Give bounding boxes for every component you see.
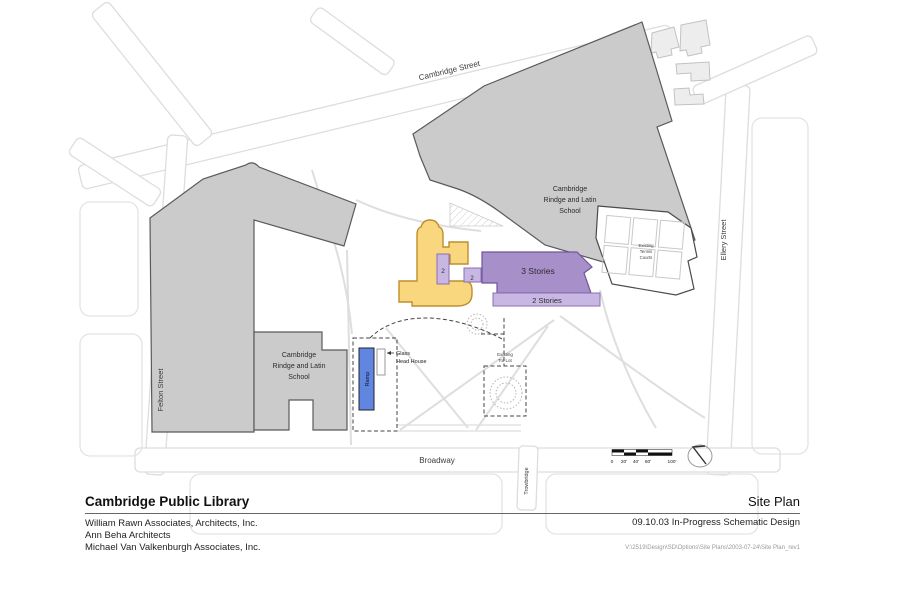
felton-street-label: Felton Street — [156, 368, 165, 412]
road-topright-diagonal — [692, 34, 819, 105]
school-label-line: School — [559, 208, 581, 215]
ellery-street-road — [706, 85, 750, 476]
leader-arrowhead — [387, 351, 391, 355]
library-existing-building — [399, 220, 472, 306]
totlot-label-line: Tot Lot — [498, 358, 512, 363]
tennis-label-line: Tennis — [640, 249, 652, 254]
glass-head-house-structure — [377, 349, 385, 375]
road-topleft-diagonal — [90, 1, 213, 148]
scale-tick: 20' — [621, 459, 627, 465]
tree — [467, 314, 487, 334]
tennis-label-line: Courts — [640, 255, 653, 260]
road-topmid-diagonal — [309, 6, 396, 76]
school-label-line: Cambridge — [553, 186, 587, 193]
neighbor-building — [680, 20, 710, 56]
school-label-line: Rindge and Latin — [273, 363, 326, 370]
addition-3story-label: 3 Stories — [521, 266, 555, 276]
totlot-label-line: Existing — [497, 352, 513, 357]
scale-tick: 0 — [611, 459, 614, 465]
ellery-street-label: Ellery Street — [719, 219, 728, 261]
glass-label-line: Glass — [396, 351, 410, 357]
school-label-line: School — [288, 374, 310, 381]
tot-lot-label: Existing Tot Lot — [497, 352, 513, 363]
neighbor-building — [676, 62, 710, 81]
link-floors-label: 2 — [441, 268, 445, 275]
broadway-road — [135, 448, 780, 472]
scale-tick: 100' — [668, 459, 677, 465]
school-building-left-wing — [254, 332, 347, 430]
zone-arc — [370, 318, 504, 340]
broadway-label: Broadway — [419, 456, 455, 465]
school-label-line: Cambridge — [282, 352, 316, 359]
scale-tick: 40' — [633, 459, 639, 465]
school-label-line: Rindge and Latin — [544, 197, 597, 204]
tennis-label-line: Existing — [638, 243, 654, 248]
site-plan-sheet: 0 20' 40' 60' 100' Cambridge Street Felt… — [0, 0, 900, 600]
site-plan-drawing: 0 20' 40' 60' 100' Cambridge Street Felt… — [0, 0, 900, 600]
scale-tick: 60' — [645, 459, 651, 465]
tree — [490, 377, 522, 409]
ramp-label: Ramp — [365, 372, 371, 387]
glass-label-line: Head House — [396, 359, 427, 365]
neighbor-building — [651, 27, 679, 58]
trowbridge-label: Trowbridge — [524, 467, 530, 494]
addition-2story-label: 2 Stories — [532, 296, 562, 305]
tennis-courts-label: Existing Tennis Courts — [638, 243, 654, 260]
